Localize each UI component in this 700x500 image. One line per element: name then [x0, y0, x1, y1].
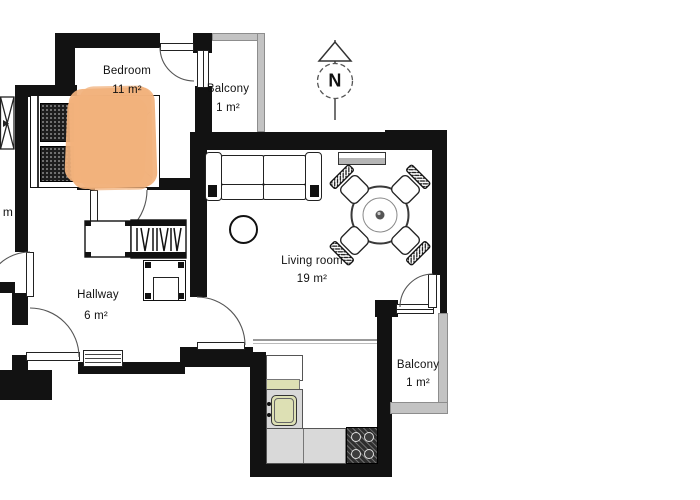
- arc-living-balcony-door: [400, 274, 433, 307]
- room-area-living: 19 m²: [297, 273, 327, 285]
- room-label-balcony-top: Balcony: [207, 83, 249, 95]
- room-label-living: Living room: [281, 255, 343, 267]
- arc-bathroom-door: [0, 252, 30, 297]
- room-area-balcony-top: 1 m²: [216, 102, 240, 114]
- arc-entry-door: [30, 308, 79, 357]
- room-area-bedroom: 11 m²: [112, 84, 142, 96]
- wardrobe-rack: [85, 220, 186, 258]
- floorplan-canvas: Bedroom 11 m² Balcony 1 m² Living room 1…: [0, 0, 700, 500]
- cutoff-room-label-fragment: m: [3, 205, 13, 219]
- window-x-symbol: [1, 97, 15, 149]
- room-label-bedroom: Bedroom: [103, 65, 151, 77]
- arc-bedroom-balcony-door: [160, 47, 194, 81]
- room-label-hallway: Hallway: [77, 289, 119, 301]
- room-area-hallway: 6 m²: [84, 310, 108, 322]
- arc-hall-living-door: [197, 297, 245, 345]
- compass-north-letter: N: [328, 71, 341, 92]
- bed-blanket: [66, 86, 160, 192]
- room-area-balcony-right: 1 m²: [406, 377, 430, 389]
- room-label-balcony-right: Balcony: [397, 359, 439, 371]
- dining-table-set: [329, 164, 430, 265]
